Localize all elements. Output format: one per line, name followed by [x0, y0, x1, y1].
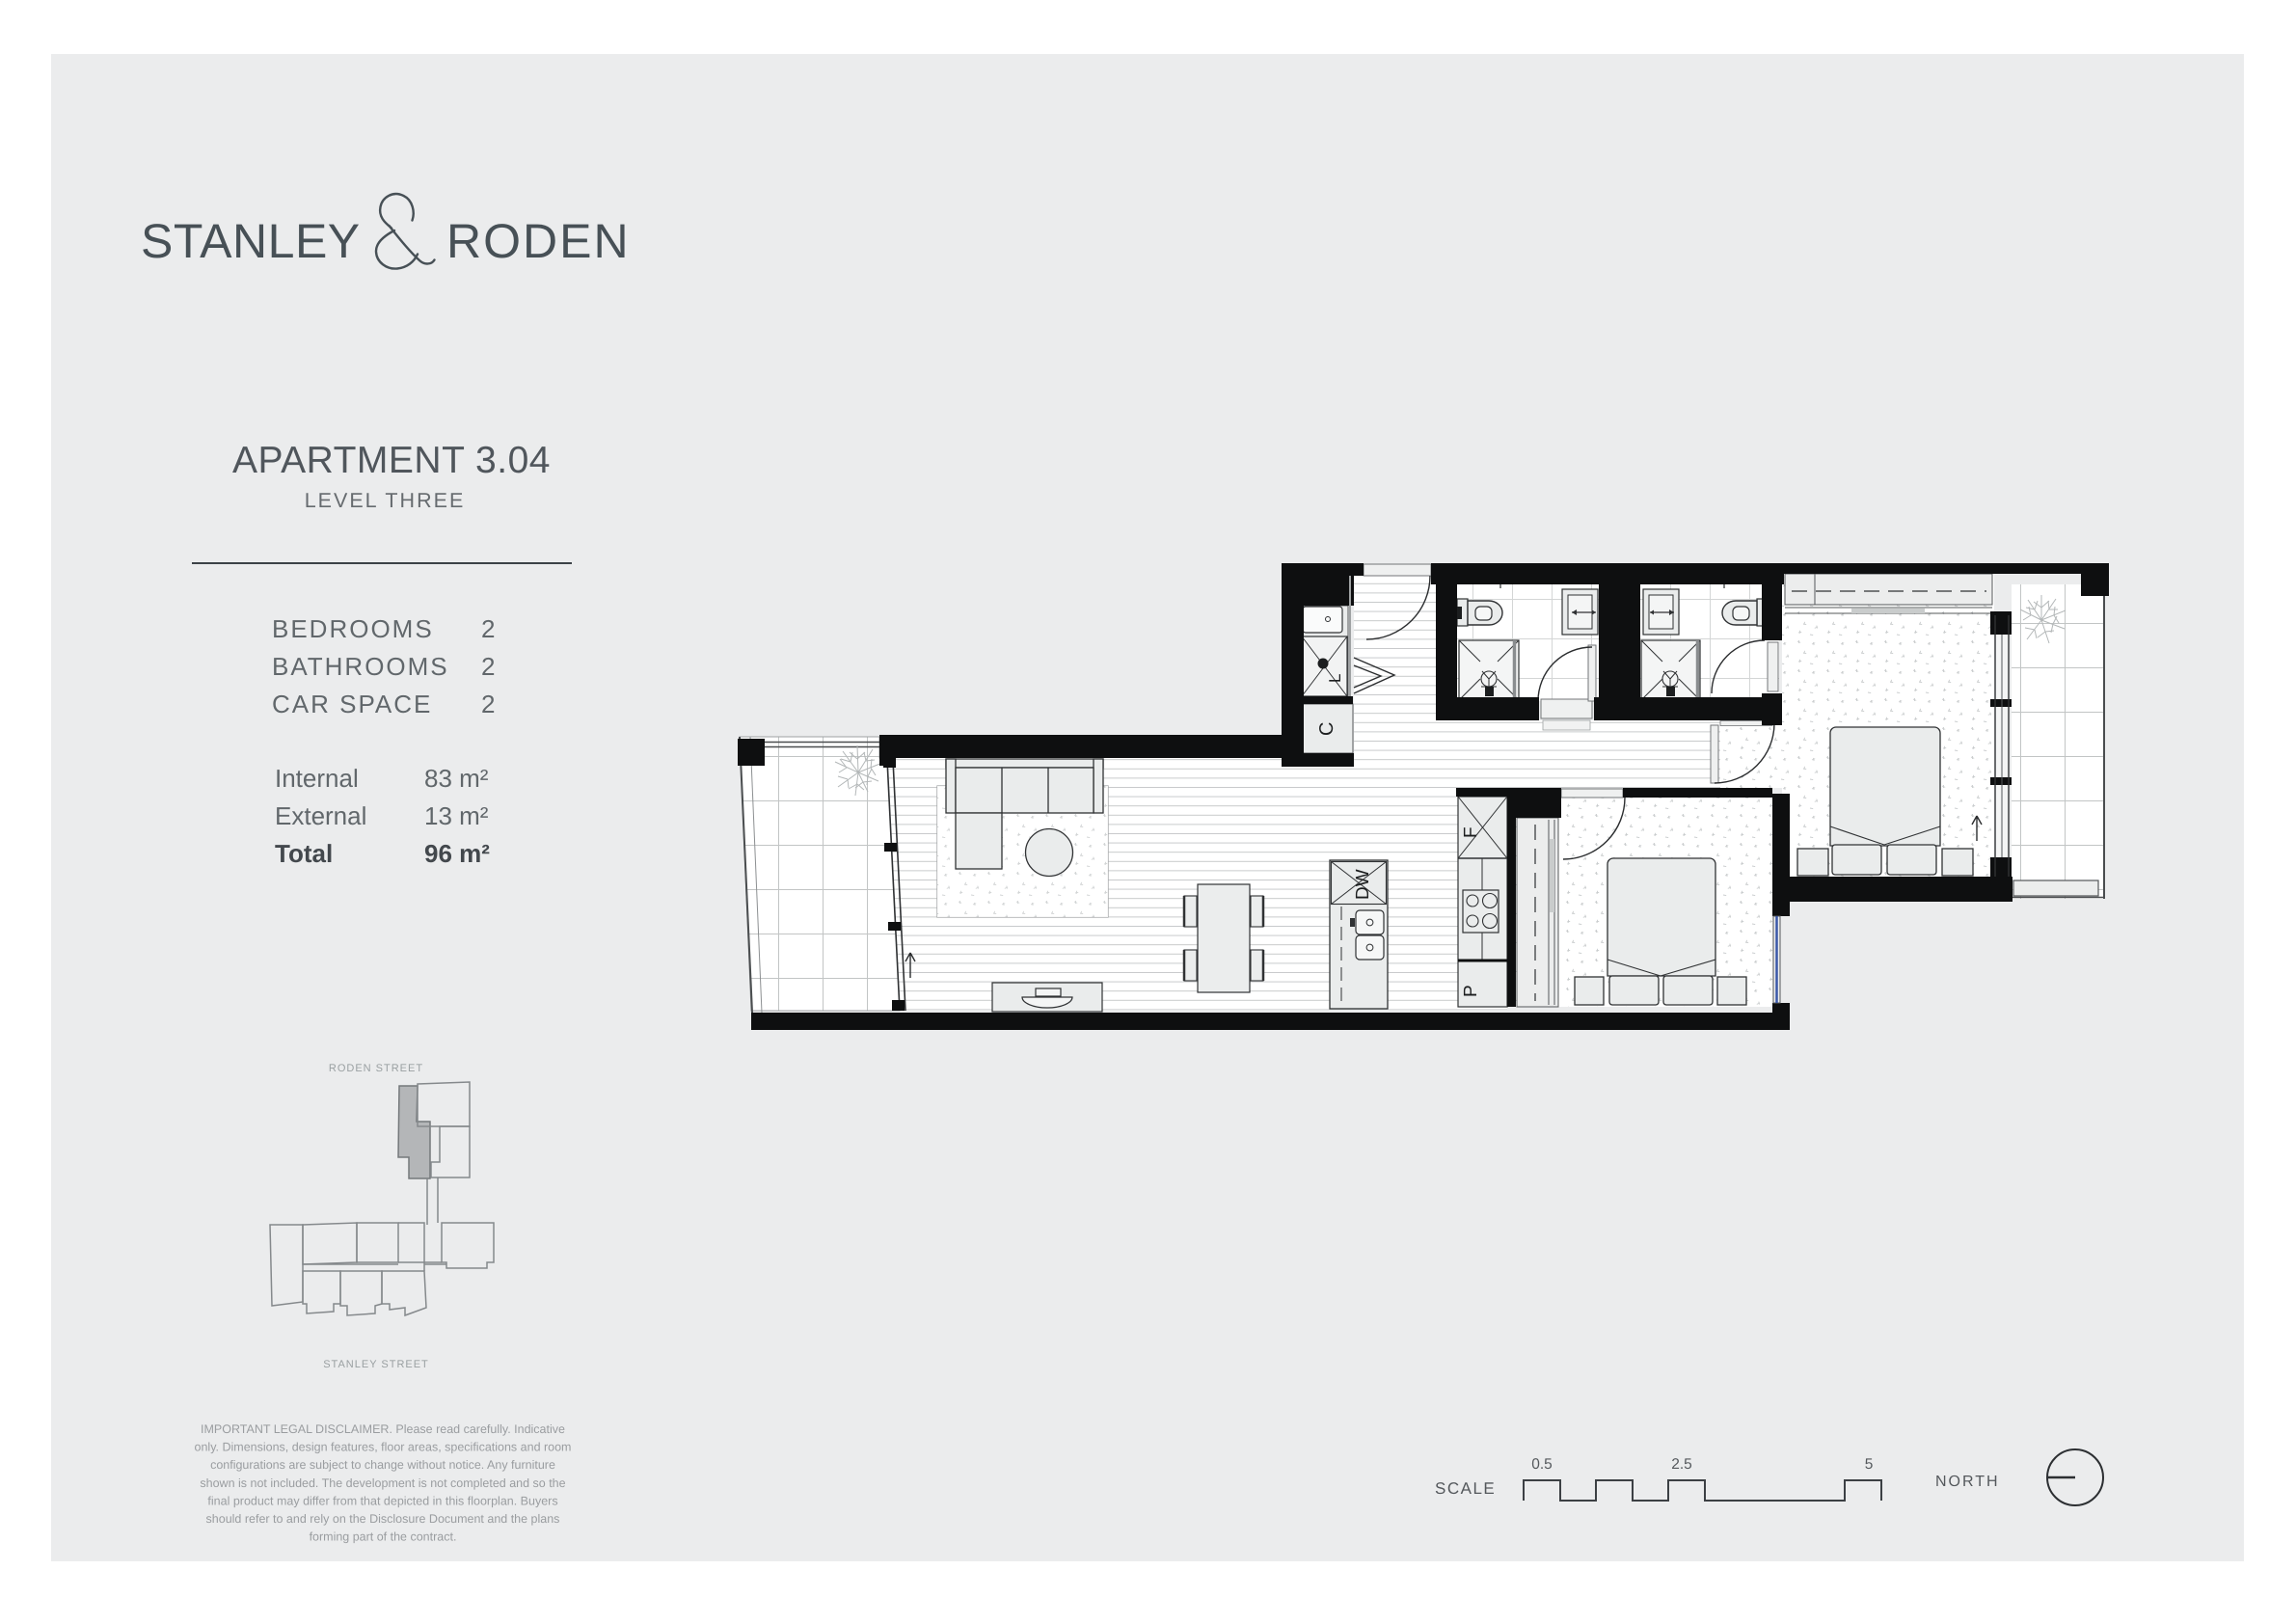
svg-text:P: P — [1461, 985, 1481, 997]
svg-text:Internal: Internal — [275, 764, 359, 793]
svg-text:2: 2 — [481, 690, 495, 718]
svg-text:BATHROOMS: BATHROOMS — [272, 652, 449, 681]
svg-text:96 m²: 96 m² — [424, 839, 490, 868]
svg-text:C: C — [1316, 722, 1337, 736]
svg-text:only. Dimensions, design featu: only. Dimensions, design features, floor… — [195, 1441, 572, 1454]
svg-text:final product may differ from: final product may differ from that depic… — [207, 1494, 557, 1507]
svg-text:13 m²: 13 m² — [424, 801, 489, 830]
svg-text:RODEN STREET: RODEN STREET — [329, 1063, 423, 1074]
svg-text:LEVEL THREE: LEVEL THREE — [305, 489, 466, 512]
svg-text:0.5: 0.5 — [1531, 1456, 1553, 1473]
svg-text:shown is not included. The dev: shown is not included. The development i… — [200, 1476, 565, 1490]
svg-text:STANLEY: STANLEY — [141, 214, 361, 268]
svg-text:2.5: 2.5 — [1671, 1456, 1692, 1473]
svg-text:F: F — [1461, 826, 1481, 838]
svg-text:L: L — [1326, 674, 1344, 683]
svg-text:SCALE: SCALE — [1435, 1479, 1496, 1498]
svg-text:configurations are subject to: configurations are subject to change wit… — [210, 1458, 555, 1472]
svg-text:IMPORTANT LEGAL DISCLAIMER. Pl: IMPORTANT LEGAL DISCLAIMER. Please read … — [201, 1422, 565, 1436]
svg-text:CAR SPACE: CAR SPACE — [272, 690, 432, 718]
svg-text:NORTH: NORTH — [1935, 1474, 2000, 1490]
svg-text:2: 2 — [481, 652, 495, 681]
svg-text:DW: DW — [1353, 869, 1373, 900]
svg-text:forming part of the contract.: forming part of the contract. — [310, 1530, 457, 1544]
svg-text:RODEN: RODEN — [446, 214, 631, 268]
svg-text:External: External — [275, 801, 366, 830]
svg-text:Total: Total — [275, 839, 333, 868]
svg-text:83 m²: 83 m² — [424, 764, 489, 793]
svg-text:should refer to and rely on th: should refer to and rely on the Disclosu… — [206, 1512, 560, 1526]
svg-text:APARTMENT 3.04: APARTMENT 3.04 — [232, 440, 551, 481]
svg-text:5: 5 — [1865, 1456, 1874, 1473]
svg-text:STANLEY STREET: STANLEY STREET — [323, 1359, 429, 1370]
svg-text:BEDROOMS: BEDROOMS — [272, 614, 434, 643]
svg-text:2: 2 — [481, 614, 495, 643]
